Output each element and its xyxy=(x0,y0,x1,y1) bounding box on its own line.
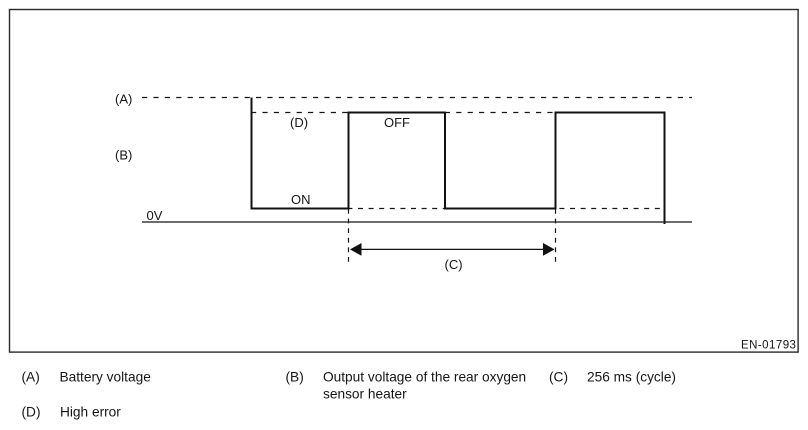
svg-text:EN-01793: EN-01793 xyxy=(741,340,796,352)
svg-text:ON: ON xyxy=(291,192,311,207)
svg-text:(D): (D) xyxy=(22,405,41,420)
svg-text:(B): (B) xyxy=(286,370,304,385)
svg-text:sensor heater: sensor heater xyxy=(323,387,407,402)
svg-text:(D): (D) xyxy=(290,115,308,130)
svg-text:0V: 0V xyxy=(147,208,163,223)
svg-text:Battery voltage: Battery voltage xyxy=(60,370,151,385)
svg-text:OFF: OFF xyxy=(384,115,410,130)
svg-text:High error: High error xyxy=(60,405,121,420)
svg-text:(C): (C) xyxy=(445,257,463,272)
svg-text:(A): (A) xyxy=(22,370,40,385)
svg-text:Output voltage of the rear oxy: Output voltage of the rear oxygen xyxy=(323,370,526,385)
svg-text:(A): (A) xyxy=(115,92,132,107)
svg-text:(B): (B) xyxy=(115,148,132,163)
svg-text:(C): (C) xyxy=(549,370,568,385)
svg-text:256 ms (cycle): 256 ms (cycle) xyxy=(587,370,676,385)
